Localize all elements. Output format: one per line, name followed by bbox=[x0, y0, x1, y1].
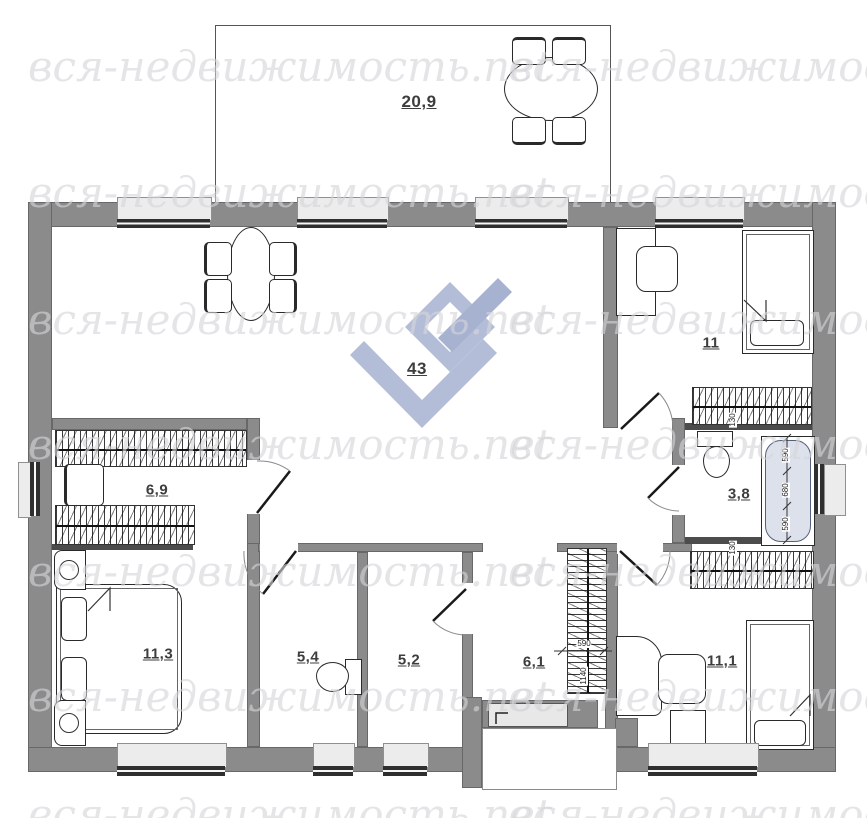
window-sill bbox=[313, 743, 355, 768]
window bbox=[313, 766, 353, 776]
window bbox=[117, 766, 225, 776]
wall bbox=[52, 418, 247, 430]
window bbox=[655, 219, 743, 228]
toilet bbox=[703, 446, 730, 478]
door-leaf bbox=[263, 551, 296, 594]
window-sill bbox=[383, 743, 429, 768]
stool bbox=[64, 464, 104, 506]
pillow bbox=[750, 320, 804, 346]
chair bbox=[552, 117, 586, 145]
door-opening bbox=[670, 465, 687, 515]
window bbox=[297, 219, 387, 228]
desk-chair bbox=[658, 654, 706, 704]
room-area-label-hall: 6,1 bbox=[523, 654, 545, 671]
wardrobe bbox=[55, 505, 195, 545]
wardrobe bbox=[690, 551, 814, 589]
pillow bbox=[754, 720, 806, 746]
nightstand bbox=[54, 550, 86, 590]
wardrobe bbox=[55, 430, 247, 467]
bathtub-dim-label: 680 bbox=[782, 482, 790, 497]
wardrobe-dim-label: 590 bbox=[576, 640, 591, 648]
floor-plan: 590 680 590 130 130 590 1140 20,9 43 11 … bbox=[0, 0, 867, 818]
wardrobe-dim-label: 1140 bbox=[580, 666, 588, 685]
room-area-label-bedroom-br: 11,1 bbox=[707, 653, 737, 670]
window bbox=[814, 464, 824, 514]
bathtub-dim-label: 590 bbox=[782, 447, 790, 462]
chair bbox=[269, 279, 297, 313]
window bbox=[30, 462, 40, 516]
nightstand bbox=[54, 700, 86, 746]
chair bbox=[269, 242, 297, 276]
window bbox=[117, 219, 210, 228]
room-area-label-pantry: 5,2 bbox=[398, 652, 420, 669]
window bbox=[475, 219, 567, 228]
wall-thickness-label: 130 bbox=[729, 540, 737, 555]
toilet-tank bbox=[697, 431, 733, 447]
entrance-porch bbox=[482, 728, 617, 790]
wall bbox=[357, 552, 368, 747]
chair bbox=[204, 279, 232, 313]
wall bbox=[462, 697, 482, 788]
watermark-text: вся-недвижимость.net bbox=[508, 790, 867, 818]
window-sill bbox=[297, 197, 389, 221]
door-arc bbox=[657, 551, 670, 585]
room-area-label-living: 43 bbox=[407, 359, 427, 379]
lamp-icon bbox=[59, 560, 79, 580]
dining-table bbox=[504, 57, 598, 121]
room-area-label-dressing: 6,9 bbox=[146, 482, 168, 499]
door-arc bbox=[659, 393, 673, 429]
chair bbox=[204, 242, 232, 276]
door-leaf bbox=[621, 393, 659, 429]
room-area-label-wc: 5,4 bbox=[297, 649, 319, 666]
door-opening bbox=[260, 541, 298, 554]
desk-chair bbox=[636, 246, 678, 292]
window-sill bbox=[117, 743, 227, 768]
window-sill bbox=[648, 743, 759, 768]
bathtub-dim-label: 590 bbox=[782, 516, 790, 531]
wardrobe bbox=[692, 387, 812, 425]
logo-chevron bbox=[350, 339, 497, 428]
pillow bbox=[61, 657, 87, 701]
logo-band bbox=[438, 278, 512, 352]
desk bbox=[616, 636, 662, 716]
door-opening bbox=[460, 583, 475, 634]
room-area-label-bedroom-tr: 11 bbox=[703, 335, 720, 352]
dining-table bbox=[227, 227, 275, 321]
chair bbox=[512, 37, 546, 65]
wall bbox=[247, 543, 260, 747]
chair bbox=[512, 117, 546, 145]
wall-thickness-label: 130 bbox=[729, 412, 737, 427]
window-sill bbox=[655, 197, 745, 221]
door-leaf bbox=[620, 551, 657, 585]
room-area-label-bathroom: 3,8 bbox=[728, 486, 750, 503]
wall bbox=[615, 718, 638, 747]
pillow bbox=[61, 597, 87, 641]
window-sill bbox=[824, 464, 846, 516]
door-opening bbox=[617, 541, 663, 554]
window-sill bbox=[475, 197, 569, 221]
brand-logo bbox=[345, 275, 520, 455]
window-sill bbox=[117, 197, 212, 221]
room-area-label-bedroom-left: 11,3 bbox=[143, 646, 173, 663]
room-area-label-terrace: 20,9 bbox=[401, 92, 436, 112]
window bbox=[648, 766, 757, 776]
chair bbox=[552, 37, 586, 65]
door-opening bbox=[245, 460, 262, 514]
lamp-icon bbox=[59, 713, 79, 733]
watermark-text: вся-недвижимость.net bbox=[28, 790, 552, 818]
window bbox=[383, 766, 427, 776]
entrance-door bbox=[488, 703, 568, 727]
